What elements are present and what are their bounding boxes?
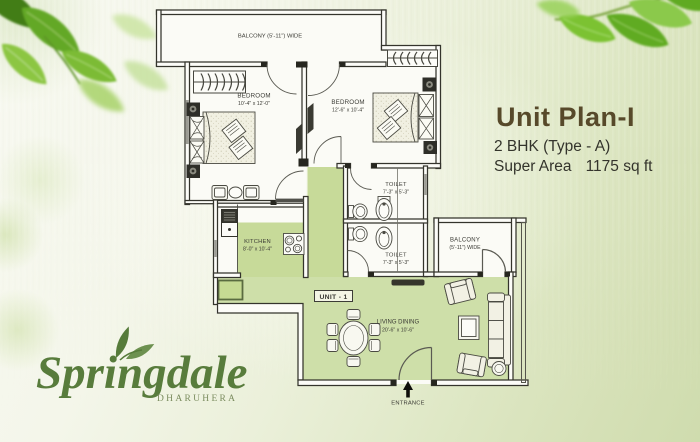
svg-text:10'-4" x 12'-0": 10'-4" x 12'-0": [238, 101, 270, 107]
svg-text:ENTRANCE: ENTRANCE: [391, 401, 425, 407]
svg-text:UNIT - 1: UNIT - 1: [319, 294, 347, 301]
svg-text:LIVING DINING: LIVING DINING: [377, 320, 420, 326]
svg-text:TOILET: TOILET: [385, 253, 407, 259]
svg-text:BEDROOM: BEDROOM: [237, 93, 270, 100]
svg-text:12'-6" x 10'-4": 12'-6" x 10'-4": [332, 108, 364, 114]
svg-text:BALCONY (5'-11") WIDE: BALCONY (5'-11") WIDE: [238, 34, 302, 40]
svg-text:BALCONY: BALCONY: [450, 238, 480, 244]
svg-text:7'-3" x 5'-3": 7'-3" x 5'-3": [383, 260, 409, 266]
svg-text:KITCHEN: KITCHEN: [244, 239, 271, 245]
svg-text:BEDROOM: BEDROOM: [331, 99, 364, 106]
svg-text:TOILET: TOILET: [385, 182, 407, 188]
svg-text:7'-3" x 5'-3": 7'-3" x 5'-3": [383, 190, 409, 196]
svg-text:20'-6" x 10'-6": 20'-6" x 10'-6": [382, 328, 414, 334]
svg-text:(5'-11") WIDE: (5'-11") WIDE: [449, 245, 481, 251]
svg-text:8'-0" x 10'-4": 8'-0" x 10'-4": [243, 247, 272, 253]
